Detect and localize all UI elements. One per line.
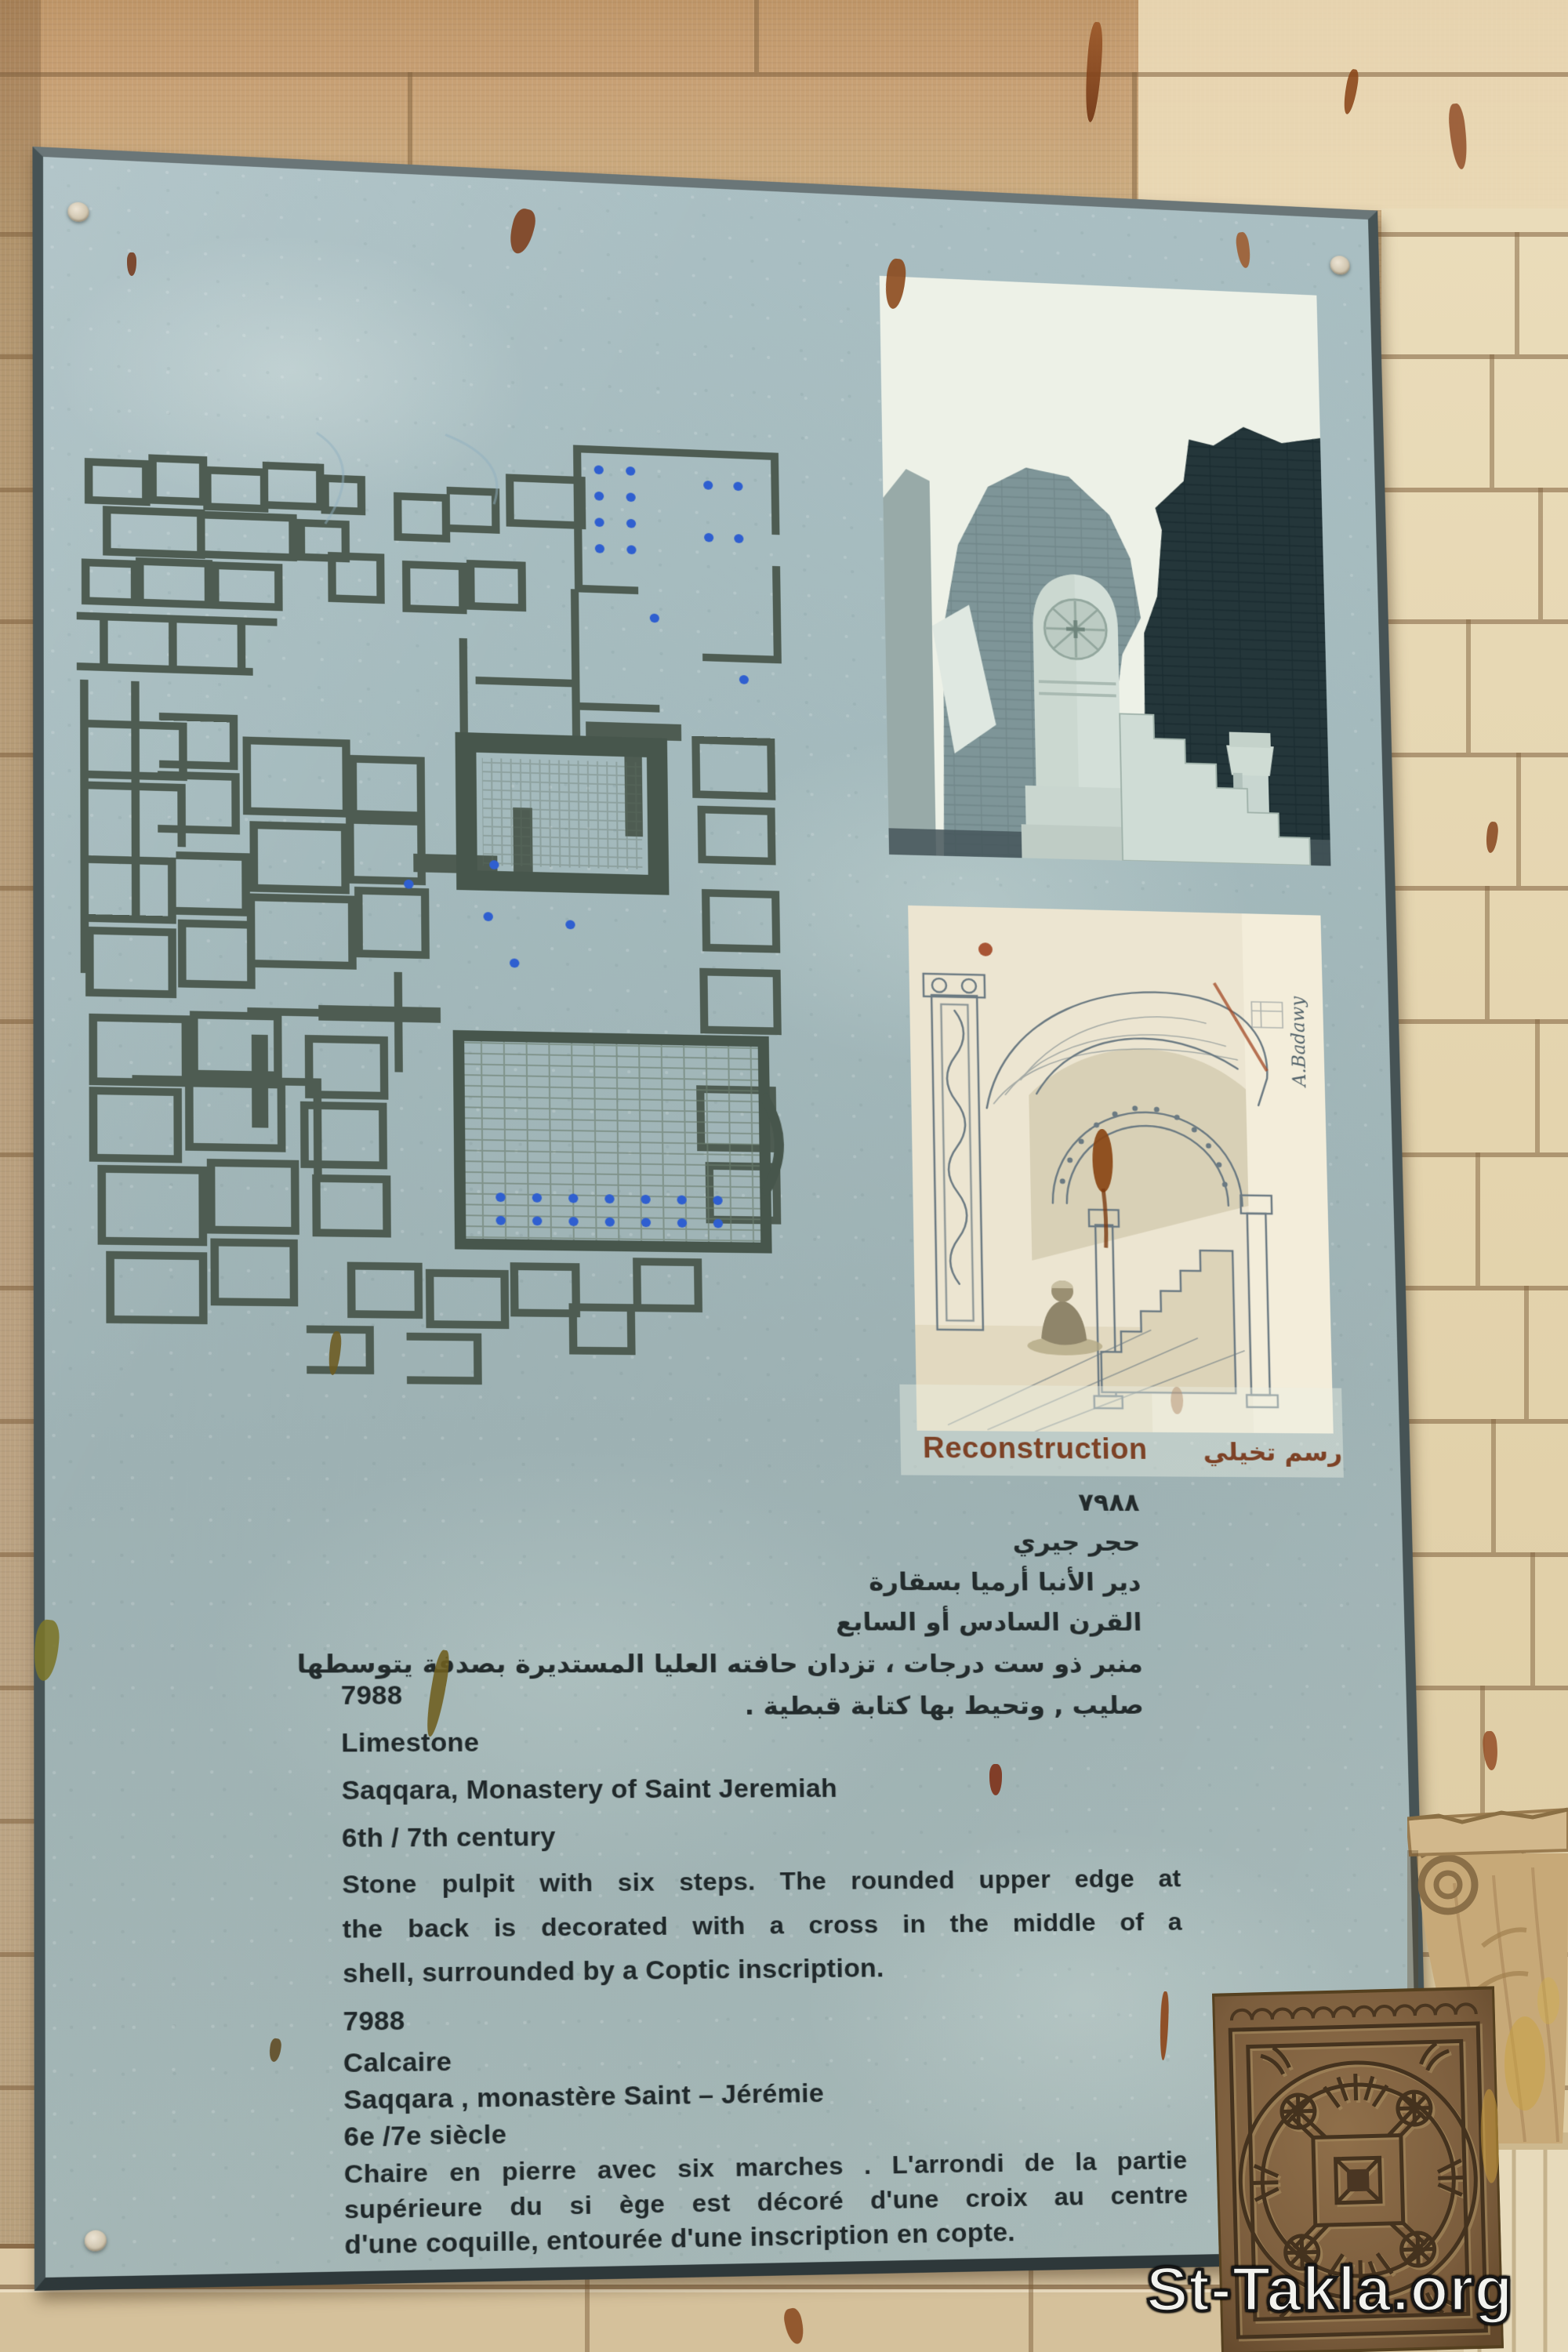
floor-plan-contours (317, 430, 498, 530)
floor-plan-church-hall (459, 1036, 781, 1248)
english-desc-1: Stone pulpit with six steps. The rounded… (342, 1861, 1181, 1902)
screw-top-left (67, 201, 89, 222)
ruins-photo (880, 276, 1331, 866)
english-provenance: Saqqara, Monastery of Saint Jeremiah (341, 1771, 837, 1808)
french-date: 6e /7e siècle (343, 2117, 506, 2154)
arabic-line-desc-2: صليب , وتحيط بها كتابة قبطية . (744, 1688, 1144, 1722)
french-provenance: Saqqara , monastère Saint – Jérémie (343, 2076, 824, 2118)
photo-of-museum-sign: A.Badawy Reconstruction رسم تخيلي ٧٩٨٨ ح… (0, 0, 1568, 2352)
english-number: 7988 (341, 1678, 403, 1712)
english-date: 6th / 7th century (342, 1820, 556, 1856)
watermark: St-Takla.org (1146, 2253, 1513, 2325)
english-desc-3: shell, surrounded by a Coptic inscriptio… (343, 1951, 884, 1991)
arabic-line-material: حجر جيري (1012, 1525, 1141, 1559)
french-number: 7988 (343, 2003, 405, 2039)
arabic-line-date: القرن السادس أو السابع (836, 1605, 1142, 1639)
english-material: Limestone (341, 1726, 479, 1761)
french-material: Calcaire (343, 2044, 452, 2081)
reconstruction-label-arabic: رسم تخيلي (1109, 1436, 1343, 1467)
floor-plan-courtyard-floor (482, 758, 643, 869)
reconstruction-drawing: A.Badawy (908, 906, 1334, 1434)
information-sign: A.Badawy Reconstruction رسم تخيلي ٧٩٨٨ ح… (43, 157, 1421, 2278)
arabic-line-desc-1: منبر ذو ست درجات ، تزدان حافته العليا ال… (296, 1646, 1143, 1681)
wall-light-patch (1138, 0, 1568, 210)
arabic-line-provenance: دير الأنبا أرميا بسقارة (869, 1565, 1142, 1599)
arabic-line-number: ٧٩٨٨ (1078, 1485, 1140, 1519)
drawing-signature: A.Badawy (1287, 996, 1310, 1088)
photo-far-ruins (883, 468, 936, 855)
floor-plan (56, 415, 800, 1428)
